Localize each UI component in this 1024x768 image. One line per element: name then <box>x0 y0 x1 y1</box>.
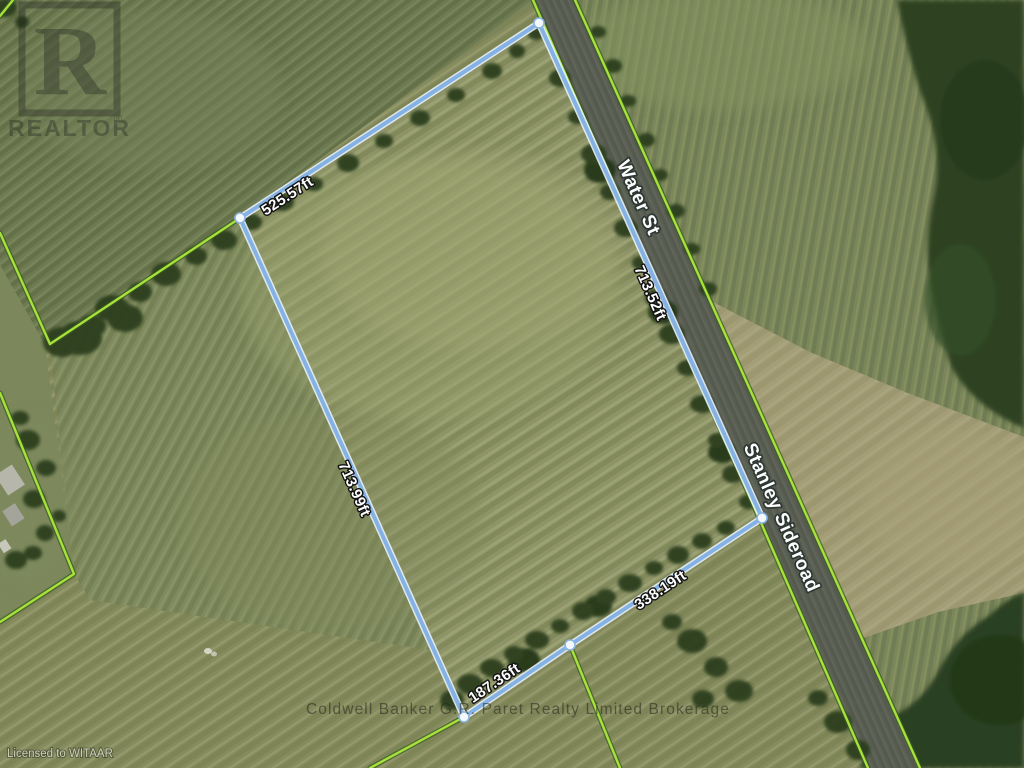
corner-dot-north <box>534 18 544 28</box>
aerial-map: 525.57ft 713.52ft 713.99ft 338.19ft 187.… <box>0 0 1024 768</box>
corner-dot-west <box>235 213 245 223</box>
aerial-photo: 525.57ft 713.52ft 713.99ft 338.19ft 187.… <box>0 0 1024 768</box>
corner-dot-southmid <box>565 640 575 650</box>
registered-trademark-icon: ® <box>114 113 122 125</box>
license-watermark: Licensed to WITAAR <box>7 748 113 760</box>
realtor-logo-text: REALTOR <box>8 115 131 141</box>
corner-dot-east <box>757 513 767 523</box>
realtor-logo-letter: R <box>34 5 108 116</box>
brokerage-watermark: Coldwell Banker G.R. Paret Realty Limite… <box>306 701 730 718</box>
